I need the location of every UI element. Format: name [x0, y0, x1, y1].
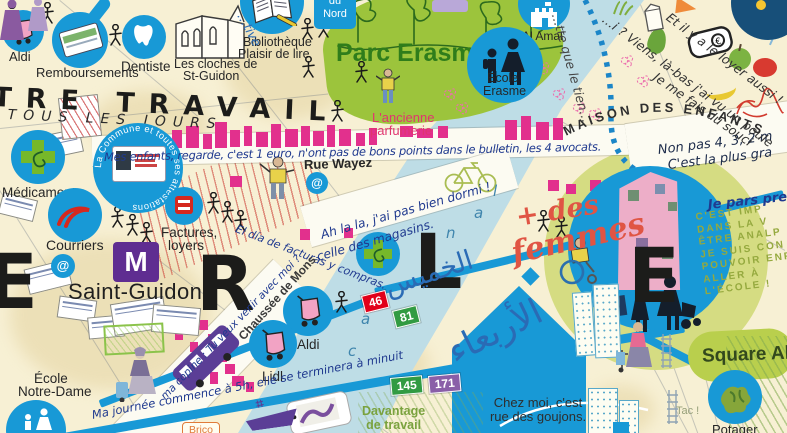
flower-scribble-icon: [455, 102, 470, 115]
market-dot: [756, 0, 766, 10]
serpent-swirl-icon: [26, 148, 50, 172]
building-block: [300, 229, 310, 240]
illustrated-neighborhood-map: Parc Erasme MAISO: [0, 0, 787, 433]
tram-stop-tag: [432, 0, 468, 12]
davantage-line: Davantage: [362, 404, 425, 418]
canal-letter: c: [348, 342, 356, 360]
vegetables-icon: [716, 378, 754, 416]
shopping-trolley-icon: [293, 292, 323, 330]
shopping-trolley-icon: [258, 326, 288, 364]
bus-line-chip-145: 145: [390, 375, 423, 396]
blue-diamond: [521, 267, 539, 285]
building-block: [210, 372, 218, 384]
wayez-man-icon: [258, 156, 296, 206]
davantage-block: Davantage de travail: [362, 404, 425, 433]
at-icon: @: [57, 258, 70, 273]
id-line: [135, 164, 157, 167]
metro-logo: M: [113, 242, 159, 282]
quote-chez-moi: Chez moi, c'est: [486, 396, 590, 410]
blue-block: [613, 422, 629, 433]
aldi-label: Aldi: [9, 50, 31, 64]
at-sign-marker: @: [51, 254, 75, 278]
bus-line-chip-171: 171: [428, 373, 461, 394]
stick-figure-icon: [206, 192, 221, 214]
building-block: [225, 364, 235, 374]
equals-icon: [175, 196, 193, 214]
ecole-erasme-label2: Erasme: [483, 85, 526, 98]
parfumerie-label2: parfumerie: [370, 124, 432, 138]
square-albert-label: Square Alb: [702, 343, 787, 366]
quote-chez-moi2: rue des goujons.: [486, 410, 590, 424]
cleaning-lady-icon: [114, 346, 162, 402]
du-nord-tag: du Nord: [314, 0, 356, 29]
flower-scribble-icon: [443, 88, 458, 101]
building-block: [327, 125, 335, 147]
canal-letter: a: [474, 204, 483, 222]
house-window: [655, 184, 665, 194]
milk-carton-icon: [641, 0, 665, 34]
courriers-label: Courriers: [46, 238, 104, 253]
building-block: [244, 126, 252, 146]
park-kid-icon: [376, 68, 400, 106]
house-window: [668, 202, 677, 211]
railway-ladder-icon: [660, 334, 673, 368]
dentiste-label: Dentiste: [121, 60, 171, 74]
saint-guidon-label: Saint-Guidon: [68, 280, 202, 303]
stick-figure-icon: [334, 291, 349, 313]
at-sign-marker: @: [306, 172, 328, 194]
metro-m-label: M: [124, 246, 147, 277]
building-block: [521, 116, 531, 140]
open-book-icon: [250, 0, 298, 26]
building-block: [438, 126, 448, 138]
building-block: [256, 132, 268, 147]
building-block: [548, 180, 559, 191]
factures-label2: loyers: [168, 239, 204, 253]
du-nord-label2: Nord: [323, 8, 347, 20]
woman-trolley-icon: [612, 320, 658, 376]
cloches-label2: St-Guidon: [183, 70, 239, 83]
postal-swoosh-icon: [56, 200, 94, 230]
stick-figure-icon: [108, 24, 123, 46]
building-block: [285, 129, 298, 147]
building-block: [230, 176, 242, 187]
quote-ecole-caps: C'EST IMP DANS LA V ÊTRE ANALP JE SUIS C…: [695, 200, 787, 299]
big-letter: E: [628, 242, 680, 310]
parent-child-white-icon: [16, 408, 58, 433]
building-block: [230, 130, 240, 147]
rue-wayez-label: Rue Wayez: [304, 156, 373, 172]
big-letter: E: [0, 248, 38, 316]
building-block: [271, 124, 281, 148]
flower-scribble-icon: [620, 55, 635, 68]
building-block: [301, 126, 310, 146]
aldi-mid-label: Aldi: [297, 338, 320, 352]
bibliotheque-label2: Plaisir de lire: [238, 48, 310, 61]
stick-figure-icon: [125, 214, 140, 236]
stick-figure-icon: [354, 61, 369, 83]
building-block: [339, 129, 351, 146]
celery-icon: [612, 0, 634, 16]
serpent-swirl-icon: [368, 246, 388, 266]
purple-ladies-icon: [0, 0, 64, 42]
potager-label: Potager: [712, 423, 758, 433]
davantage-line2: de travail: [362, 418, 425, 432]
chez-moi-block: Chez moi, c'est rue des goujons.: [486, 396, 590, 425]
notre-dame-label2: Notre-Dame: [18, 385, 92, 399]
canal-letter: l: [493, 182, 497, 200]
building-block: [536, 122, 549, 140]
tac-label: Tac !: [676, 406, 699, 418]
church-drawing-icon: [172, 0, 248, 60]
building-block: [313, 131, 324, 146]
du-nord-label: du: [329, 0, 341, 7]
brico-tag: Brico: [182, 422, 220, 433]
canal-letter: a: [361, 310, 370, 328]
canal-letter: n: [446, 224, 456, 242]
tooth-icon: [131, 22, 157, 52]
building-block: [505, 120, 517, 140]
stick-figure-icon: [139, 222, 154, 244]
at-icon: @: [311, 176, 323, 190]
